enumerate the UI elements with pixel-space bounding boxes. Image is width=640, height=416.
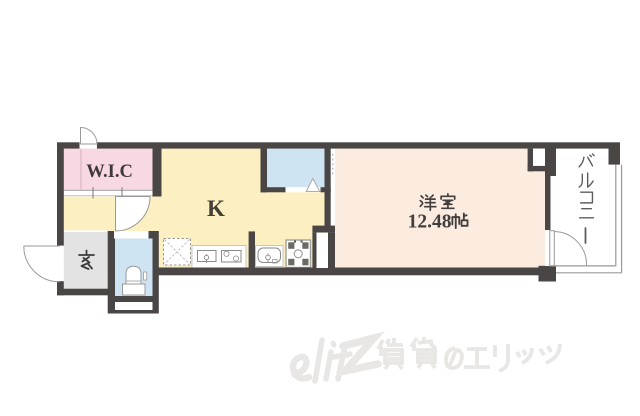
svg-text:K: K bbox=[207, 196, 225, 221]
svg-text:W.I.C: W.I.C bbox=[86, 162, 133, 182]
svg-text:12.48: 12.48 bbox=[408, 212, 452, 233]
